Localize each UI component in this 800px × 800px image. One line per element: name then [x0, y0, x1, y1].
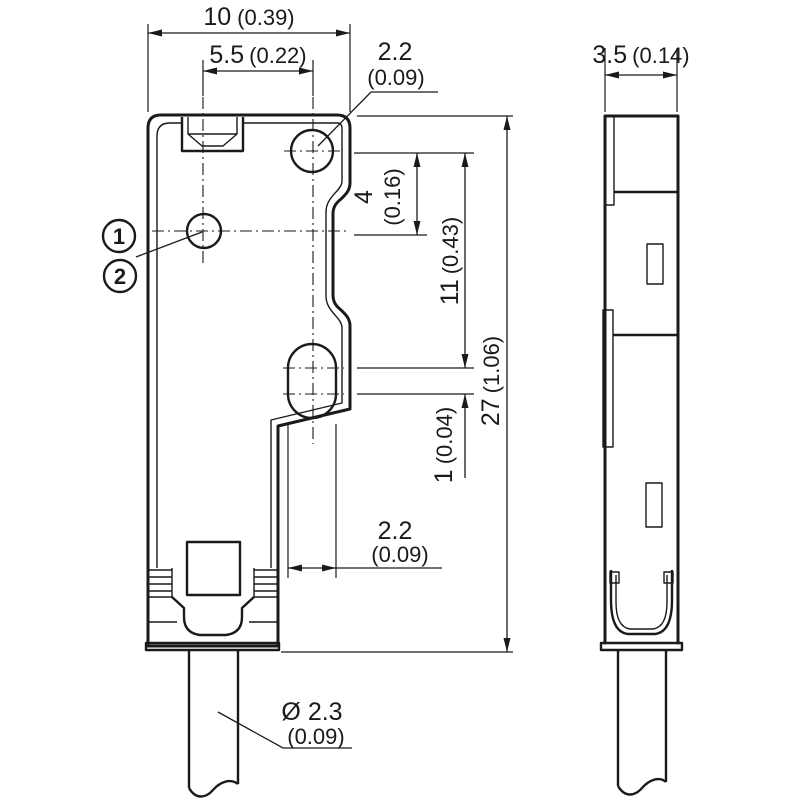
- cable-break-wave-side: [618, 779, 666, 794]
- dim-slot-width-inch: (0.09): [371, 542, 428, 567]
- dim-hole-to-slot: 11(0.43): [357, 153, 474, 394]
- dim-slot-play: 1(0.04): [430, 394, 469, 483]
- drawing-canvas: 10(0.39) 5.5(0.22) 2.2 (0.09) 4 (0.16): [0, 0, 800, 800]
- side-outer-contour: [605, 116, 678, 643]
- mounting-slot: [288, 344, 336, 418]
- dim-side-width-label: 3.5(0.14): [592, 41, 689, 69]
- dim-hole-to-slot-label: 11(0.43): [436, 217, 464, 305]
- dim-body-length-label: 27(1.06): [477, 336, 505, 426]
- connector-block: [187, 542, 240, 595]
- dim-top-hole-dia: 2.2 (0.09): [318, 38, 438, 146]
- clamp-base-plate-side: [601, 643, 682, 650]
- dim-side-width: 3.5(0.14): [592, 41, 689, 112]
- optical-window-notch: [182, 117, 243, 151]
- dim-hole-offset-inch: (0.16): [380, 168, 405, 225]
- front-view: [146, 97, 350, 797]
- cable-clamp-side: [601, 570, 682, 650]
- side-slot-lower: [646, 483, 662, 527]
- callout-2-label: 2: [114, 264, 126, 289]
- front-outer-contour: [148, 115, 350, 646]
- cable-side: [618, 650, 666, 795]
- callout-1-label: 1: [113, 224, 125, 249]
- dimensional-drawing: 10(0.39) 5.5(0.22) 2.2 (0.09) 4 (0.16): [0, 0, 800, 800]
- dim-cable-dia-value: Ø 2.3: [281, 698, 342, 726]
- side-slot-upper: [647, 244, 663, 284]
- dim-top-hole-dia-value: 2.2: [378, 38, 413, 66]
- dim-slot-width: 2.2 (0.09): [288, 424, 442, 578]
- dim-hole-spacing-label: 5.5(0.22): [209, 41, 306, 69]
- side-view: [601, 116, 682, 795]
- dim-slot-width-value: 2.2: [378, 517, 413, 545]
- dim-cable-dia-inch: (0.09): [287, 724, 344, 749]
- dim-slot-play-label: 1(0.04): [430, 407, 458, 483]
- cable-front: [189, 650, 238, 797]
- dim-hole-offset-value: 4: [350, 190, 378, 204]
- front-inner-contour-right: [243, 123, 342, 568]
- cable-clamp-front: [146, 542, 279, 650]
- front-inner-contour: [157, 123, 182, 568]
- dim-top-hole-dia-inch: (0.09): [367, 65, 424, 90]
- cable-break-wave-front: [189, 781, 238, 796]
- dim-hole-spacing: 5.5(0.22): [203, 41, 313, 96]
- dim-outer-width-label: 10(0.39): [203, 3, 294, 31]
